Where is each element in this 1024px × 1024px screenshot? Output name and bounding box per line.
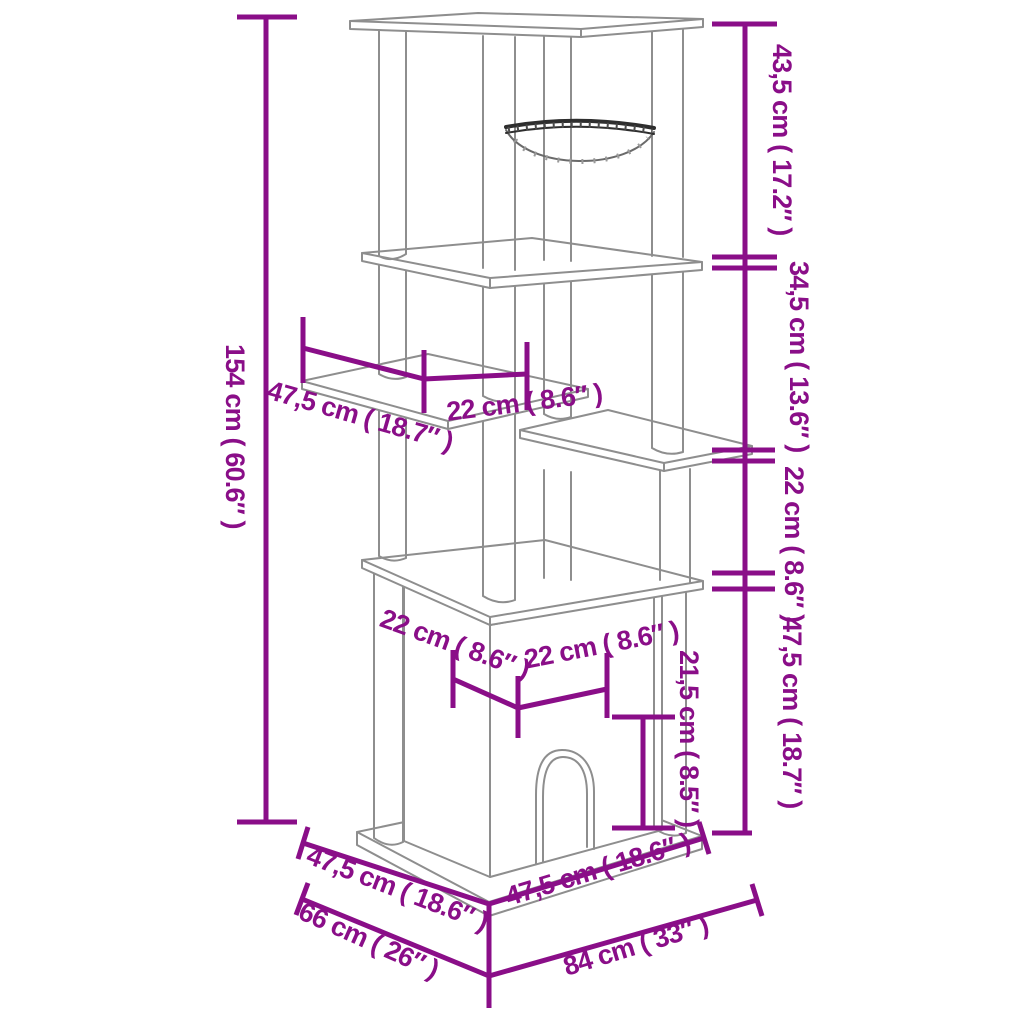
dimension-diagram: 154 cm ( 60.6″ ) 43,5 cm ( 17.2″ ) 34,5 … (0, 0, 1024, 1024)
cat-tree-line-drawing (0, 0, 1024, 1024)
dim-label-lower-mid-tier-height: 22 cm ( 8.6″ ) (779, 466, 808, 622)
dim-label-top-tier-height: 43,5 cm ( 17.2″ ) (767, 44, 796, 235)
dim-label-overall-height: 154 cm ( 60.6″ ) (220, 344, 249, 529)
dim-label-bottom-tier-height: 47,5 cm ( 18.7″ ) (777, 617, 806, 808)
hammock (506, 121, 654, 162)
top-platform (350, 13, 703, 37)
dim-label-upper-mid-tier-height: 34,5 cm ( 13.6″ ) (784, 261, 813, 452)
dim-label-door-height: 21,5 cm ( 8.5″ ) (674, 650, 703, 827)
